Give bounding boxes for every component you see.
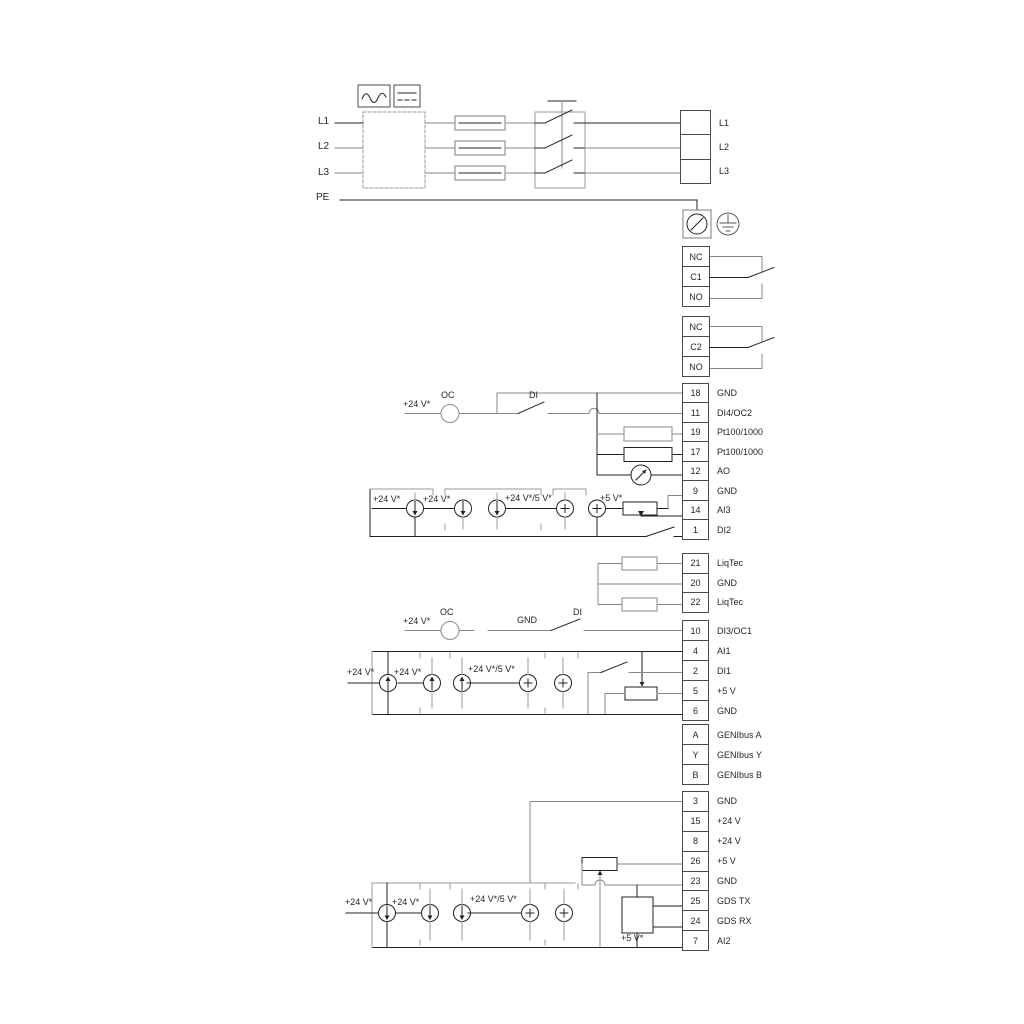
terminal-number (680, 110, 711, 135)
label-plus24v: +24 V* (347, 667, 374, 677)
terminal-number (680, 134, 711, 159)
terminal-row: 17Pt100/1000 (682, 441, 763, 462)
terminal-label: L1 (719, 118, 729, 128)
terminal-number: 2 (682, 660, 709, 681)
mains-input-wires (335, 123, 455, 173)
current-source (424, 500, 472, 529)
terminal-number: C2 (682, 336, 710, 357)
current-source (398, 658, 441, 708)
input-label-l1: L1 (318, 116, 329, 127)
terminal-row: 26+5 V (682, 851, 752, 872)
terminal-label: AI1 (717, 646, 731, 656)
terminal-number: 18 (682, 383, 709, 404)
label-di: DI (529, 390, 538, 400)
terminal-label: GND (717, 486, 737, 496)
input-label-l2: L2 (318, 141, 329, 152)
terminal-row: 4AI1 (682, 640, 752, 661)
dc-icon (394, 85, 420, 107)
terminal-label: Pt100/1000 (717, 427, 763, 437)
terminal-row: 23GND (682, 871, 752, 892)
ai1-option-chain (348, 652, 682, 715)
voltage-source (555, 658, 572, 708)
terminal-number: NO (682, 356, 710, 377)
terminal-row: NO (682, 286, 718, 307)
label-plus24v: +24 V* (394, 667, 421, 677)
terminal-row: 19Pt100/1000 (682, 422, 763, 443)
terminal-number: NO (682, 286, 710, 307)
terminal-label: GDS RX (717, 916, 752, 926)
terminal-row: 6GND (682, 700, 752, 721)
label-plus24v: +24 V* (403, 616, 430, 626)
pt100-resistor-19 (597, 427, 682, 441)
liqtec-terminal-block: 21LiqTec20GND22LiqTec (682, 553, 743, 613)
relay1-terminal-block: NCC1NO (682, 246, 718, 307)
terminal-row: 5+5 V (682, 680, 752, 701)
label-oc: OC (440, 607, 454, 617)
terminal-row: 25GDS TX (682, 890, 752, 911)
label-plus24v: +24 V* (345, 897, 372, 907)
voltage-source (556, 889, 573, 940)
voltage-source-5v (589, 500, 624, 537)
label-plus24v: +24 V* (392, 897, 419, 907)
terminal-row: 14AI3 (682, 500, 763, 521)
terminal-number: 25 (682, 890, 709, 911)
label-plus24v: +24 V* (423, 494, 450, 504)
di4-switch (497, 402, 682, 414)
terminal-number: 23 (682, 871, 709, 892)
terminal-number: NC (682, 246, 710, 267)
terminal-row: 21LiqTec (682, 553, 743, 574)
terminal-number: 24 (682, 910, 709, 931)
terminal-label: GND (717, 388, 737, 398)
label-plus24v: +24 V* (373, 494, 400, 504)
terminal-label: GND (717, 578, 737, 588)
terminal-label: DI2 (717, 525, 731, 535)
terminal-label: LiqTec (717, 558, 743, 568)
terminal-row: C2 (682, 336, 718, 357)
relay1-changeover-contact (710, 257, 774, 299)
terminal-number: 9 (682, 480, 709, 501)
liqtec-sensors (598, 557, 682, 611)
pt100-resistor-17 (597, 448, 682, 462)
terminal-number: 15 (682, 811, 709, 832)
terminal-row: 22LiqTec (682, 592, 743, 613)
terminal-label: +24 V (717, 816, 741, 826)
label-plus5v: +5 V* (600, 493, 622, 503)
terminal-row: 24GDS RX (682, 910, 752, 931)
terminal-number: 1 (682, 519, 709, 540)
terminal-row: 10DI3/OC1 (682, 620, 752, 641)
ac-sine-icon (358, 85, 390, 107)
terminal-number: 20 (682, 573, 709, 594)
analog-output-meter (597, 465, 682, 485)
terminal-label: +5 V (717, 856, 736, 866)
terminal-label: AI3 (717, 505, 731, 515)
gnd23-wire (582, 880, 682, 885)
relay2-changeover-contact (710, 327, 774, 369)
mains-output-terminal-block: L1L2L3 (680, 110, 729, 184)
wiring-diagram-canvas (0, 0, 1024, 1024)
label-plus24v-5v: +24 V*/5 V* (470, 894, 517, 904)
main-switch (535, 101, 585, 188)
terminal-row: YGENIbus Y (682, 744, 762, 765)
fuses (455, 116, 535, 180)
terminal-row: 1DI2 (682, 519, 763, 540)
terminal-number: NC (682, 316, 710, 337)
earth-ground-icon (717, 213, 739, 235)
chain-brackets (370, 489, 586, 530)
terminal-label: GDS TX (717, 896, 750, 906)
terminal-number: 10 (682, 620, 709, 641)
relay2-terminal-block: NCC2NO (682, 316, 718, 377)
terminal-row: 12AO (682, 461, 763, 482)
terminal-row: 20GND (682, 573, 743, 594)
terminal-label: DI1 (717, 666, 731, 676)
terminal-row: 7AI2 (682, 930, 752, 951)
label-plus24v: +24 V* (403, 399, 430, 409)
genibus-terminal-block: AGENIbus AYGENIbus YBGENIbus B (682, 724, 762, 785)
terminal-number: 3 (682, 791, 709, 812)
terminal-row: L1 (680, 110, 729, 135)
terminal-number: C1 (682, 266, 710, 287)
terminal-row: BGENIbus B (682, 764, 762, 785)
terminal-label: DI3/OC1 (717, 626, 752, 636)
input-label-l3: L3 (318, 167, 329, 178)
terminal-label: GND (717, 796, 737, 806)
terminal-number: 7 (682, 930, 709, 951)
terminal-number: 26 (682, 851, 709, 872)
rfi-filter-box (363, 112, 425, 188)
label-plus24v-5v: +24 V*/5 V* (505, 493, 552, 503)
current-source (454, 889, 471, 940)
terminal-number: 21 (682, 553, 709, 574)
label-plus24v-5v: +24 V*/5 V* (468, 664, 515, 674)
power-io-terminal-block: 3GND15+24 V8+24 V26+5 V23GND25GDS TX24GD… (682, 791, 752, 951)
terminal-number: 6 (682, 700, 709, 721)
terminal-row: 15+24 V (682, 811, 752, 832)
terminal-row: L3 (680, 159, 729, 184)
digital-terminal-block: 10DI3/OC14AI12DI15+5 V6GND (682, 620, 752, 721)
terminal-row: C1 (682, 266, 718, 287)
wiring-diagram-page: L1 L2 L3 PE +24 V* OC DI +24 V* +24 V* +… (0, 0, 1024, 1024)
terminal-number: 8 (682, 831, 709, 852)
terminal-number: B (682, 764, 709, 785)
terminal-label: GENIbus A (717, 730, 762, 740)
io-terminal-block: 18GND11DI4/OC219Pt100/100017Pt100/100012… (682, 383, 763, 540)
terminal-row: NO (682, 356, 718, 377)
terminal-label: +5 V (717, 686, 736, 696)
screw-terminal-icon (683, 210, 711, 238)
terminal-label: Pt100/1000 (717, 447, 763, 457)
terminal-number: A (682, 724, 709, 745)
terminal-label: AO (717, 466, 730, 476)
terminal-number: 12 (682, 461, 709, 482)
terminal-number (680, 159, 711, 184)
terminal-number: 11 (682, 402, 709, 423)
label-oc: OC (441, 390, 455, 400)
input-label-pe: PE (316, 192, 329, 203)
terminal-row: 9GND (682, 480, 763, 501)
label-gnd: GND (517, 615, 537, 625)
terminal-label: LiqTec (717, 597, 743, 607)
terminal-label: GENIbus B (717, 770, 762, 780)
terminal-number: 14 (682, 500, 709, 521)
terminal-number: 19 (682, 422, 709, 443)
terminal-label: +24 V (717, 836, 741, 846)
terminal-row: NC (682, 316, 718, 337)
pe-wire (340, 200, 697, 210)
label-plus5v: +5 V* (621, 933, 643, 943)
terminal-row: AGENIbus A (682, 724, 762, 745)
terminal-number: Y (682, 744, 709, 765)
terminal-label: AI2 (717, 936, 731, 946)
current-source (489, 493, 506, 529)
terminal-label: L2 (719, 142, 729, 152)
current-source (346, 883, 396, 948)
terminal-row: 18GND (682, 383, 763, 404)
terminal-number: 17 (682, 441, 709, 462)
label-di: DI (573, 607, 582, 617)
terminal-row: 2DI1 (682, 660, 752, 681)
terminal-label: L3 (719, 166, 729, 176)
terminal-row: NC (682, 246, 718, 267)
terminal-label: DI4/OC2 (717, 408, 752, 418)
terminal-label: GENIbus Y (717, 750, 762, 760)
terminal-label: GND (717, 706, 737, 716)
terminal-number: 4 (682, 640, 709, 661)
terminal-row: 3GND (682, 791, 752, 812)
potentiometer (605, 687, 682, 715)
terminal-row: L2 (680, 134, 729, 159)
terminal-number: 5 (682, 680, 709, 701)
potentiometer (623, 502, 668, 515)
terminal-label: GND (717, 876, 737, 886)
terminal-row: 8+24 V (682, 831, 752, 852)
terminal-row: 11DI4/OC2 (682, 402, 763, 423)
terminal-number: 22 (682, 592, 709, 613)
motor-output-wires (585, 123, 680, 173)
